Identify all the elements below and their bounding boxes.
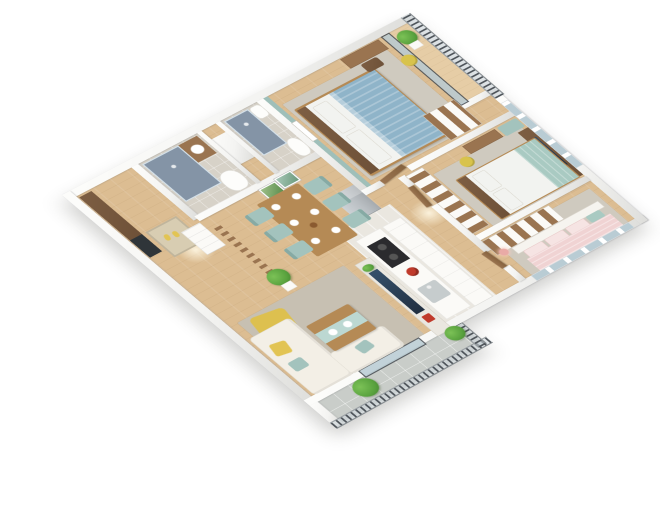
floorplan-render-canvas [0,0,660,528]
apartment-3d-model [42,1,660,443]
